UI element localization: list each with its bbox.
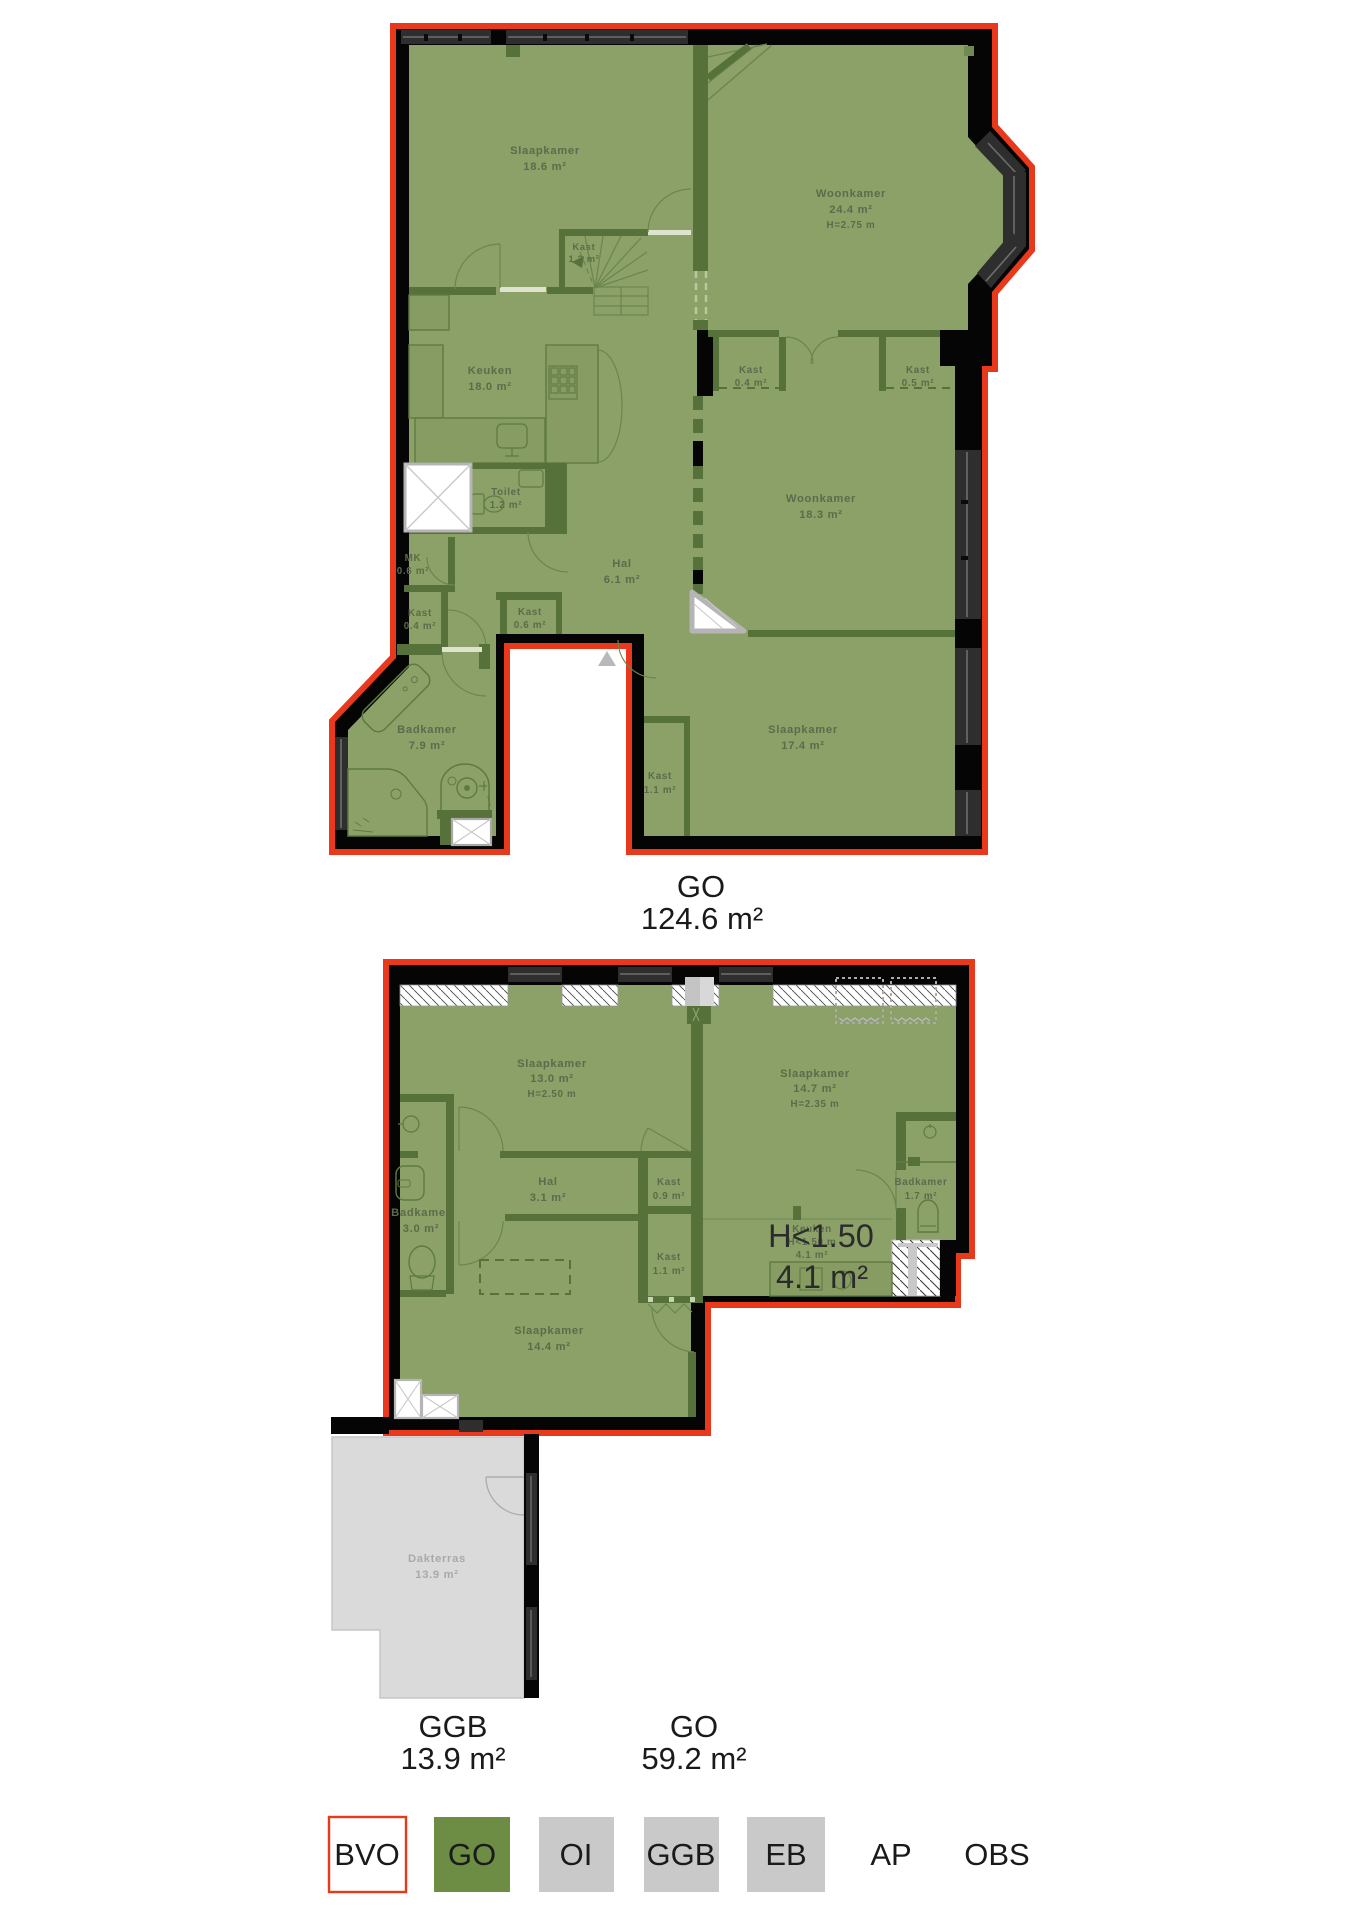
svg-text:H=2.35 m: H=2.35 m: [791, 1099, 840, 1110]
svg-text:Slaapkamer: Slaapkamer: [768, 724, 838, 736]
svg-text:3.0 m²: 3.0 m²: [403, 1223, 440, 1235]
svg-text:14.7 m²: 14.7 m²: [793, 1083, 836, 1095]
svg-text:GO: GO: [677, 869, 725, 904]
svg-text:1.7 m²: 1.7 m²: [905, 1191, 938, 1202]
svg-text:AP: AP: [870, 1837, 911, 1872]
svg-text:Kast: Kast: [906, 365, 930, 376]
svg-text:1.2 m²: 1.2 m²: [568, 254, 599, 264]
svg-text:Badkamer: Badkamer: [895, 1177, 948, 1188]
svg-text:18.3 m²: 18.3 m²: [799, 509, 842, 521]
svg-text:H=2.50 m: H=2.50 m: [528, 1089, 577, 1100]
svg-text:59.2 m²: 59.2 m²: [641, 1741, 746, 1776]
svg-text:MK: MK: [405, 553, 422, 564]
svg-text:Hal: Hal: [612, 558, 632, 570]
svg-text:Badkamer: Badkamer: [397, 724, 457, 736]
svg-text:Slaapkamer: Slaapkamer: [514, 1325, 584, 1337]
svg-text:13.9 m²: 13.9 m²: [415, 1569, 458, 1581]
svg-text:Dakterras: Dakterras: [408, 1553, 466, 1565]
svg-text:Woonkamer: Woonkamer: [786, 493, 856, 505]
svg-text:Kast: Kast: [518, 607, 542, 618]
svg-text:Slaapkamer: Slaapkamer: [780, 1068, 850, 1080]
svg-text:Kast: Kast: [648, 771, 672, 782]
svg-text:Keuken: Keuken: [468, 365, 513, 377]
svg-text:Toilet: Toilet: [491, 487, 521, 498]
svg-text:0.9 m²: 0.9 m²: [653, 1191, 686, 1202]
svg-text:14.4 m²: 14.4 m²: [527, 1341, 570, 1353]
svg-text:EB: EB: [765, 1837, 806, 1872]
svg-text:13.9 m²: 13.9 m²: [400, 1741, 505, 1776]
svg-text:0.4 m²: 0.4 m²: [735, 378, 768, 389]
svg-text:0.6 m²: 0.6 m²: [397, 566, 430, 577]
svg-text:Slaapkamer: Slaapkamer: [510, 145, 580, 157]
svg-text:GO: GO: [448, 1837, 496, 1872]
svg-text:H=2.75 m: H=2.75 m: [827, 220, 876, 231]
svg-text:Kast: Kast: [408, 608, 432, 619]
svg-text:7.9 m²: 7.9 m²: [409, 740, 446, 752]
svg-text:GO: GO: [670, 1709, 718, 1744]
svg-text:17.4 m²: 17.4 m²: [781, 740, 824, 752]
svg-text:Kast: Kast: [657, 1252, 681, 1263]
svg-text:H<1.50: H<1.50: [768, 1218, 874, 1254]
svg-text:Kast: Kast: [573, 242, 596, 252]
svg-text:13.0 m²: 13.0 m²: [530, 1073, 573, 1085]
svg-text:124.6 m²: 124.6 m²: [641, 901, 763, 936]
svg-text:1.2 m²: 1.2 m²: [490, 500, 523, 511]
svg-text:GGB: GGB: [647, 1837, 716, 1872]
svg-text:Badkamer: Badkamer: [391, 1207, 451, 1219]
svg-text:4.1 m²: 4.1 m²: [776, 1259, 868, 1295]
svg-text:OI: OI: [560, 1837, 593, 1872]
svg-text:GGB: GGB: [419, 1709, 488, 1744]
svg-text:Hal: Hal: [538, 1176, 558, 1188]
svg-text:OBS: OBS: [964, 1837, 1029, 1872]
svg-text:1.1 m²: 1.1 m²: [644, 785, 677, 796]
svg-text:3.1 m²: 3.1 m²: [530, 1192, 567, 1204]
svg-text:6.1 m²: 6.1 m²: [604, 574, 641, 586]
svg-text:1.1 m²: 1.1 m²: [653, 1266, 686, 1277]
svg-text:0.6 m²: 0.6 m²: [514, 620, 547, 631]
svg-text:Kast: Kast: [739, 365, 763, 376]
svg-text:Slaapkamer: Slaapkamer: [517, 1058, 587, 1070]
svg-text:0.5 m²: 0.5 m²: [902, 378, 935, 389]
svg-text:24.4 m²: 24.4 m²: [829, 204, 872, 216]
svg-text:18.6 m²: 18.6 m²: [523, 161, 566, 173]
svg-text:0.4 m²: 0.4 m²: [404, 621, 437, 632]
svg-text:Woonkamer: Woonkamer: [816, 188, 886, 200]
svg-text:18.0 m²: 18.0 m²: [468, 381, 511, 393]
svg-text:BVO: BVO: [334, 1837, 399, 1872]
svg-text:Kast: Kast: [657, 1177, 681, 1188]
